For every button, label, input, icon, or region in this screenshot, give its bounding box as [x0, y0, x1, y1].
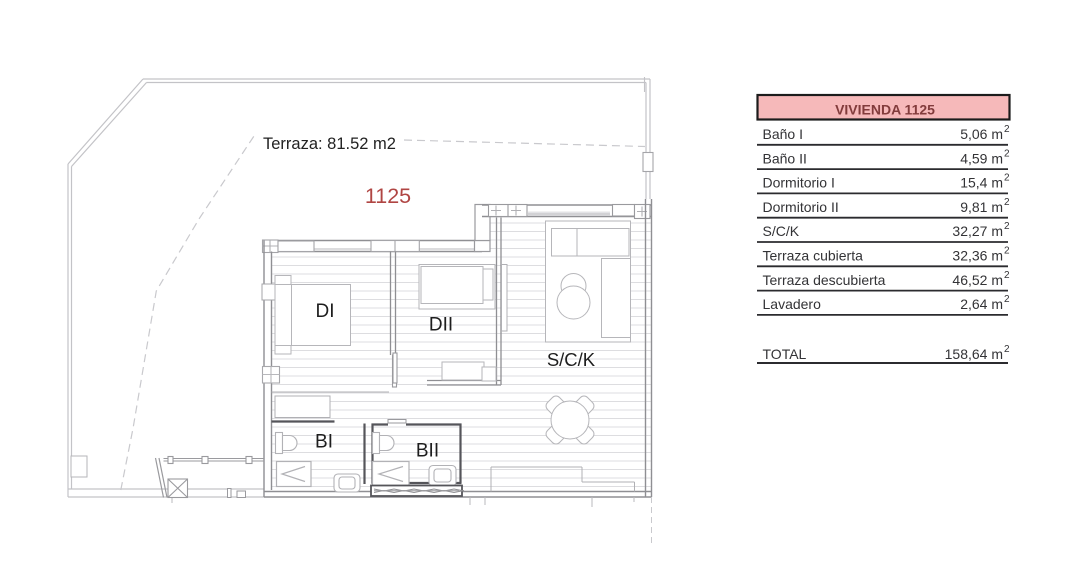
svg-text:2: 2 — [1004, 246, 1010, 257]
svg-text:BII: BII — [416, 441, 439, 462]
svg-text:BI: BI — [315, 432, 333, 453]
svg-text:Terraza: 81.52 m2: Terraza: 81.52 m2 — [263, 135, 396, 153]
svg-text:2: 2 — [1004, 124, 1010, 135]
svg-text:VIVIENDA 1125: VIVIENDA 1125 — [835, 102, 935, 118]
svg-text:32,27 m: 32,27 m — [952, 223, 1003, 239]
svg-text:1125: 1125 — [365, 184, 411, 208]
svg-text:46,52 m: 46,52 m — [952, 272, 1003, 288]
svg-text:Terraza descubierta: Terraza descubierta — [763, 272, 886, 288]
svg-text:9,81 m: 9,81 m — [960, 199, 1003, 215]
svg-text:Dormitorio II: Dormitorio II — [763, 199, 839, 215]
svg-text:Dormitorio I: Dormitorio I — [763, 175, 835, 191]
svg-text:2: 2 — [1004, 148, 1010, 159]
svg-text:2: 2 — [1004, 294, 1010, 305]
svg-text:Baño II: Baño II — [763, 150, 807, 166]
svg-text:2,64 m: 2,64 m — [960, 296, 1003, 312]
svg-text:2: 2 — [1004, 221, 1010, 232]
svg-text:TOTAL: TOTAL — [763, 346, 807, 362]
svg-text:Baño I: Baño I — [763, 126, 803, 142]
svg-text:2: 2 — [1004, 173, 1010, 184]
svg-text:4,59 m: 4,59 m — [960, 150, 1003, 166]
svg-text:DI: DI — [316, 301, 335, 322]
svg-text:32,36 m: 32,36 m — [952, 248, 1003, 264]
svg-text:Lavadero: Lavadero — [763, 296, 822, 312]
svg-text:2: 2 — [1004, 197, 1010, 208]
svg-text:15,4 m: 15,4 m — [960, 175, 1003, 191]
svg-text:158,64 m: 158,64 m — [945, 346, 1003, 362]
svg-text:Terraza cubierta: Terraza cubierta — [763, 248, 864, 264]
svg-text:DII: DII — [429, 315, 453, 336]
svg-text:2: 2 — [1004, 270, 1010, 281]
svg-text:2: 2 — [1004, 344, 1010, 355]
svg-text:S/C/K: S/C/K — [547, 349, 596, 370]
svg-text:5,06 m: 5,06 m — [960, 126, 1003, 142]
svg-text:S/C/K: S/C/K — [763, 223, 800, 239]
